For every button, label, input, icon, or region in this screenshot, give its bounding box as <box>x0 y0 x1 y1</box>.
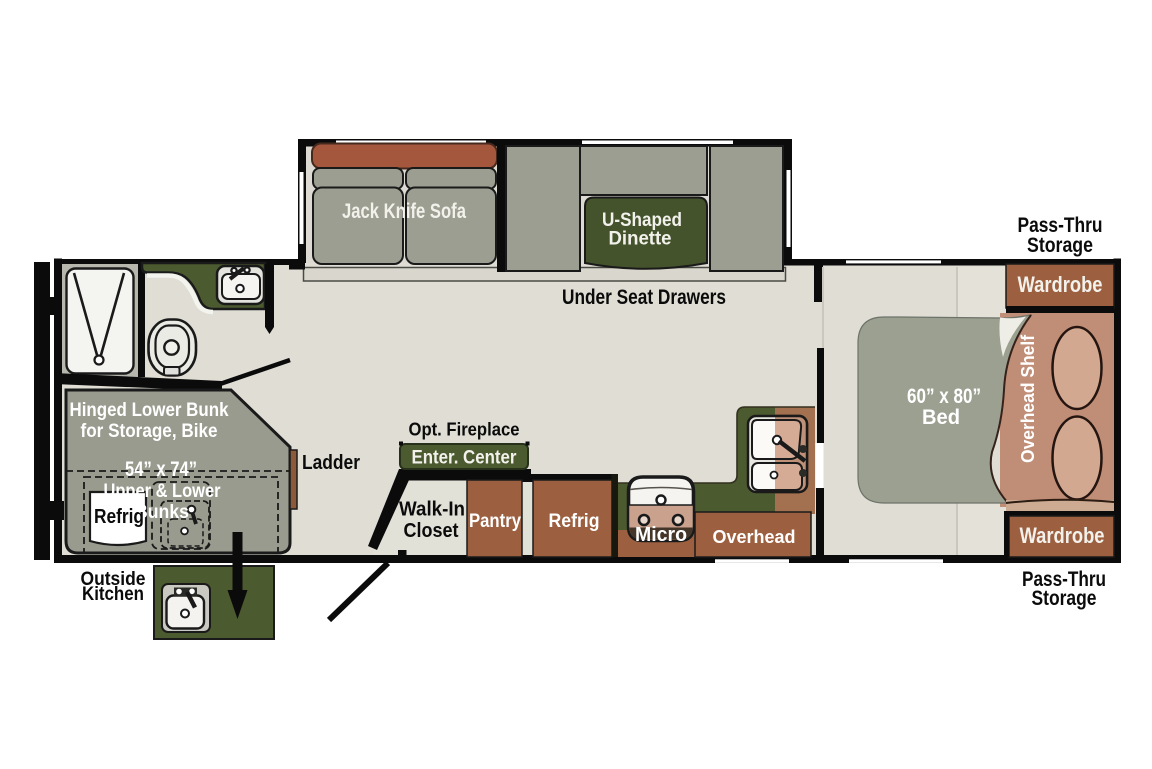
svg-text:Pantry: Pantry <box>469 510 521 532</box>
svg-text:Wardrobe: Wardrobe <box>1020 523 1105 548</box>
svg-text:for Storage, Bike: for Storage, Bike <box>81 420 218 442</box>
svg-text:Bed: Bed <box>922 406 960 429</box>
svg-text:Under Seat Drawers: Under Seat Drawers <box>562 285 726 309</box>
svg-text:Opt. Fireplace: Opt. Fireplace <box>409 419 520 440</box>
svg-text:Overhead Shelf: Overhead Shelf <box>1018 334 1038 463</box>
svg-text:Storage: Storage <box>1032 586 1097 610</box>
svg-text:Enter. Center: Enter. Center <box>412 448 518 469</box>
svg-text:Upper & Lower: Upper & Lower <box>104 480 221 502</box>
svg-text:Closet: Closet <box>404 520 459 542</box>
svg-text:Hinged Lower Bunk: Hinged Lower Bunk <box>70 399 229 421</box>
svg-text:Refrig: Refrig <box>549 510 600 532</box>
svg-text:Overhead: Overhead <box>713 526 796 547</box>
svg-text:Kitchen: Kitchen <box>82 583 144 605</box>
svg-text:Ladder: Ladder <box>302 451 360 474</box>
svg-text:Micro: Micro <box>635 524 687 546</box>
svg-text:Dinette: Dinette <box>609 228 672 250</box>
svg-text:Storage: Storage <box>1027 233 1093 257</box>
svg-text:Jack Knife Sofa: Jack Knife Sofa <box>342 200 466 223</box>
svg-text:Wardrobe: Wardrobe <box>1018 272 1103 297</box>
svg-text:54” x 74”: 54” x 74” <box>125 458 197 481</box>
svg-text:60” x 80”: 60” x 80” <box>907 385 981 408</box>
svg-text:Walk-In: Walk-In <box>399 499 465 521</box>
svg-text:Refrig: Refrig <box>94 506 144 528</box>
